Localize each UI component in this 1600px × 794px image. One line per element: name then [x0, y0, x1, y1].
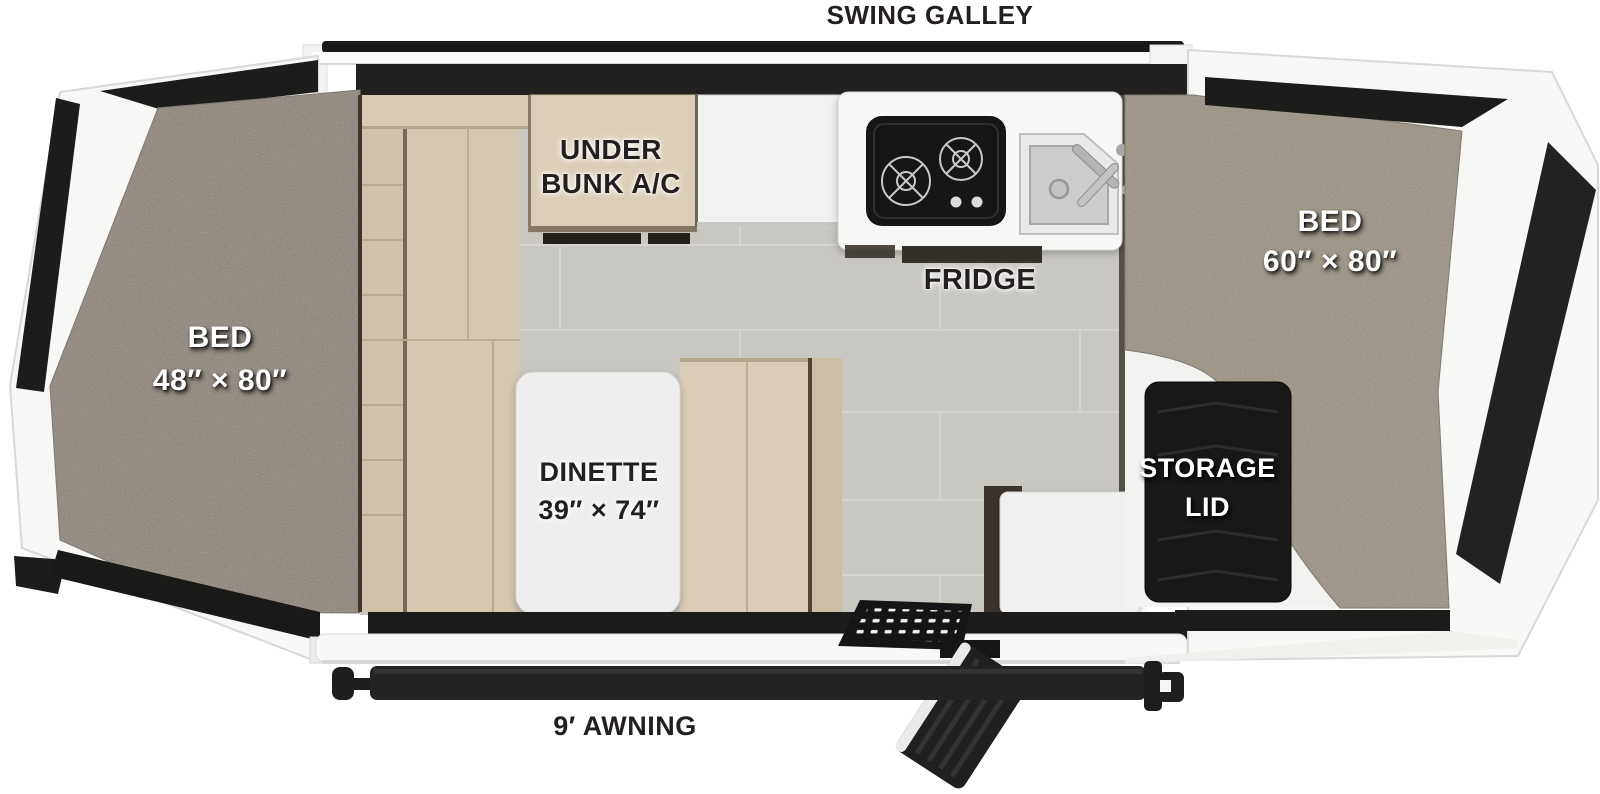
- label-awning: 9′ AWNING: [500, 710, 750, 742]
- bottom-white-band: [316, 634, 1187, 662]
- galley-counter: [838, 92, 1134, 250]
- under-bunk-ac-line2: BUNK A/C: [518, 167, 704, 201]
- awning-text: 9′ AWNING: [500, 710, 750, 742]
- bed-rear-size: 60″ × 80″: [1230, 242, 1430, 282]
- sofa-seat: [407, 95, 520, 612]
- overhead-cabinet: [695, 95, 862, 227]
- camper-body-bottom-edge: [310, 612, 1187, 664]
- storage-lid-line2: LID: [1125, 488, 1290, 527]
- fridge-top: [902, 246, 1042, 263]
- swing-galley-text: SWING GALLEY: [810, 0, 1050, 31]
- stove-knob: [972, 197, 983, 208]
- dinette-bench: [680, 358, 842, 614]
- label-dinette: DINETTE 39″ × 74″: [510, 453, 688, 529]
- awning-roller: [332, 661, 1184, 711]
- sink-icon: [1020, 134, 1134, 234]
- label-bed-rear: BED 60″ × 80″: [1230, 202, 1430, 282]
- camper-body-roof-edge: [303, 41, 1192, 97]
- rear-bottom-trim: [1175, 610, 1450, 631]
- stove-icon: [866, 116, 1006, 226]
- stove-knob: [951, 197, 962, 208]
- bed-front-size: 48″ × 80″: [120, 359, 320, 402]
- storage-lid-line1: STORAGE: [1125, 449, 1290, 488]
- dinette-line1: DINETTE: [510, 453, 688, 491]
- label-bed-front: BED 48″ × 80″: [120, 316, 320, 402]
- label-under-bunk-ac: UNDER BUNK A/C: [518, 133, 704, 201]
- roof-black-trim: [322, 41, 1184, 53]
- entry-cabinet: [984, 486, 1140, 614]
- fridge-text: FRIDGE: [895, 263, 1065, 298]
- label-fridge: FRIDGE: [895, 263, 1065, 298]
- sofa-backrest: [362, 95, 407, 612]
- dinette-bench-back: [812, 358, 842, 614]
- bed-rear-line1: BED: [1230, 202, 1430, 242]
- label-storage-lid: STORAGE LID: [1125, 449, 1290, 527]
- floorplan-canvas: SWING GALLEY UNDER BUNK A/C FRIDGE BED 4…: [0, 0, 1600, 794]
- dinette-size: 39″ × 74″: [510, 491, 688, 529]
- ac-vent-icon: [648, 233, 690, 244]
- ac-vent-icon: [543, 233, 641, 244]
- bed-front-line1: BED: [120, 316, 320, 359]
- under-bunk-ac-line1: UNDER: [518, 133, 704, 167]
- label-swing-galley: SWING GALLEY: [810, 0, 1050, 31]
